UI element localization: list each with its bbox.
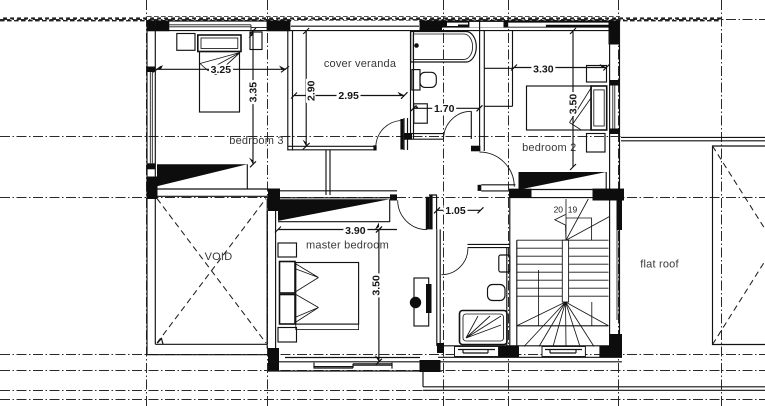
svg-text:1.70: 1.70 <box>434 103 455 115</box>
svg-text:flat roof: flat roof <box>640 259 679 271</box>
svg-text:19: 19 <box>568 205 578 215</box>
svg-text:cover veranda: cover veranda <box>324 58 397 70</box>
svg-text:3.30: 3.30 <box>533 64 554 76</box>
svg-text:2.95: 2.95 <box>338 90 359 102</box>
svg-text:3.35: 3.35 <box>247 82 259 103</box>
svg-text:3.90: 3.90 <box>345 225 366 237</box>
svg-text:3.50: 3.50 <box>568 94 580 115</box>
svg-text:VOID: VOID <box>205 251 233 263</box>
svg-text:20: 20 <box>554 205 564 215</box>
svg-text:3.50: 3.50 <box>370 275 382 296</box>
svg-text:bedroom 3: bedroom 3 <box>229 135 283 147</box>
svg-text:2.90: 2.90 <box>305 80 317 101</box>
svg-text:bedroom 2: bedroom 2 <box>522 142 576 154</box>
svg-text:1.05: 1.05 <box>445 205 466 217</box>
svg-text:master bedroom: master bedroom <box>306 240 389 252</box>
svg-text:3.25: 3.25 <box>211 64 232 76</box>
